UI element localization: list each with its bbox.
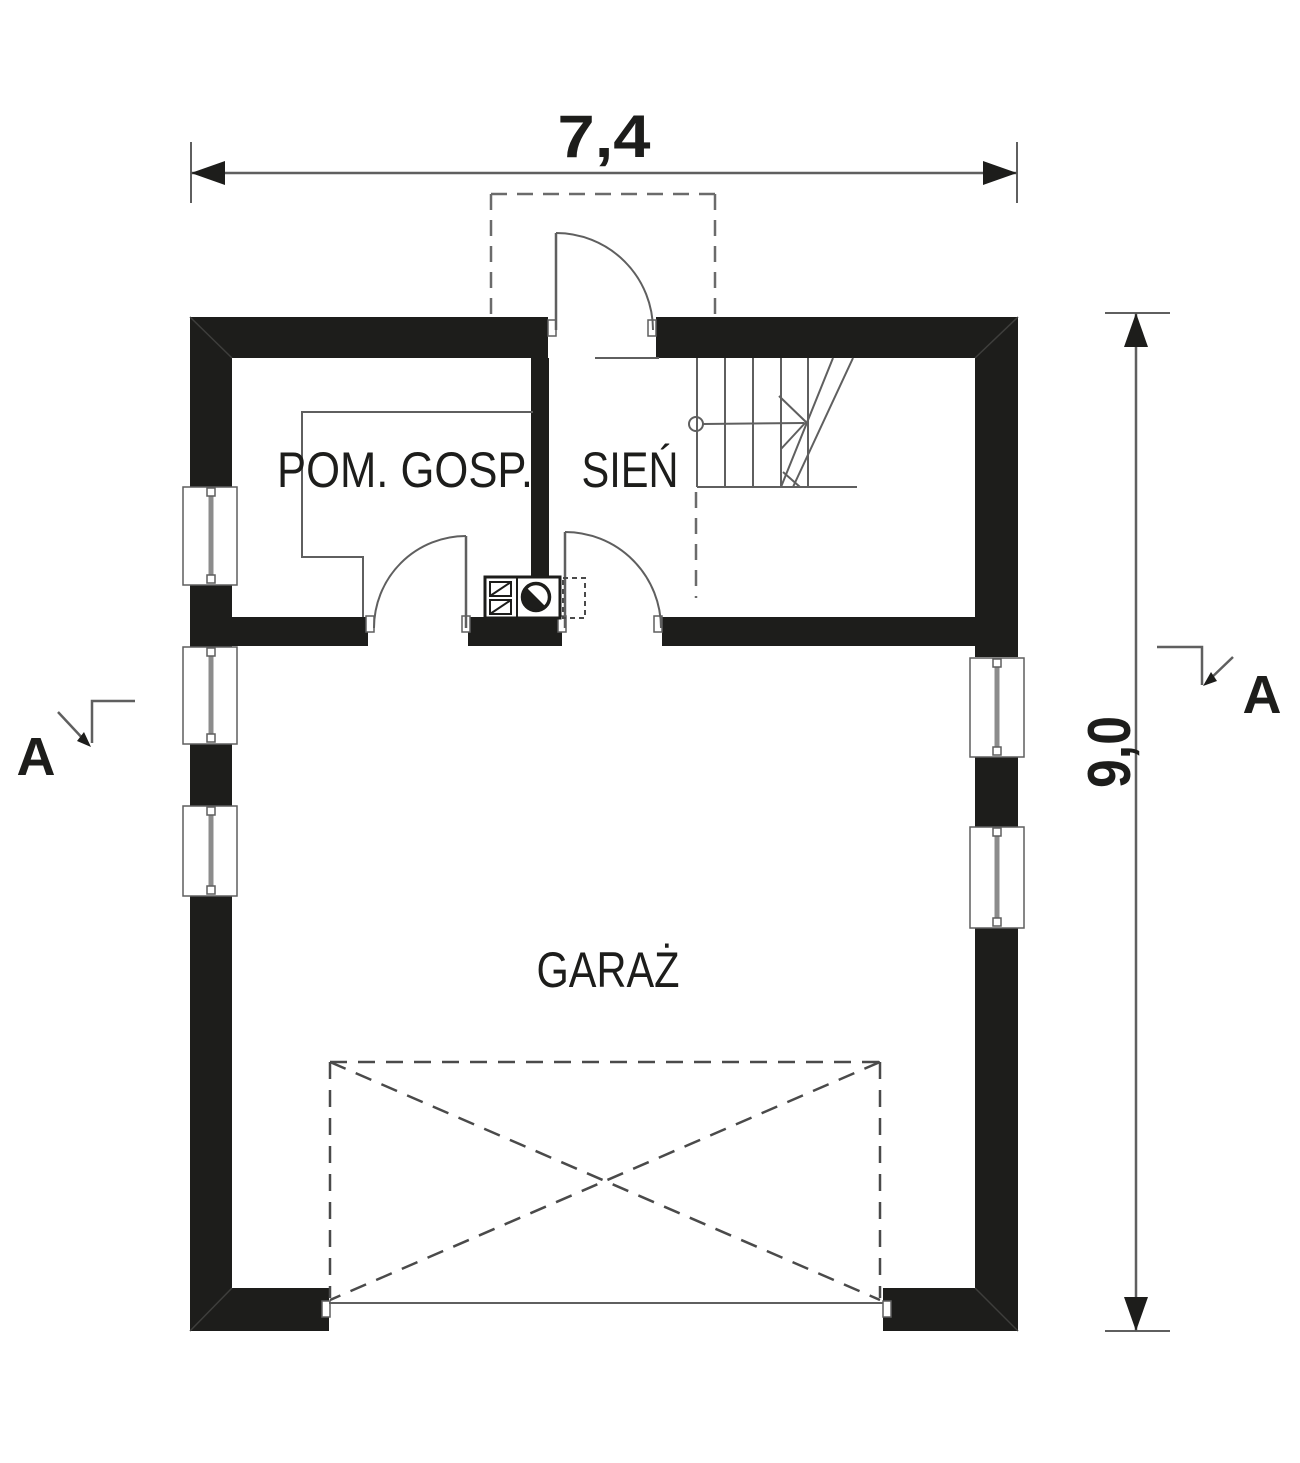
door-swing-arc bbox=[556, 233, 653, 330]
wall-left-b bbox=[190, 585, 232, 647]
room-label-garage: GARAŻ bbox=[537, 942, 680, 998]
window bbox=[183, 647, 237, 744]
wall-interior-vertical bbox=[531, 358, 549, 577]
door-utility bbox=[366, 536, 470, 632]
window bbox=[970, 827, 1024, 928]
wall-left-a bbox=[190, 317, 232, 487]
wall-top-right bbox=[656, 317, 1018, 358]
dimension-width-label: 7,4 bbox=[558, 103, 652, 170]
wall-right-a bbox=[975, 317, 1018, 657]
boiler-flue-dashed-box bbox=[563, 578, 585, 618]
wall-interior-h2 bbox=[468, 617, 562, 646]
dimension-arrow bbox=[1124, 313, 1148, 347]
door-jamb bbox=[366, 616, 374, 632]
floor-plan-drawing: 7,4 9,0 A A POM. GOSP. SIEŃ GARAŻ bbox=[0, 0, 1300, 1463]
dimension-width: 7,4 bbox=[191, 103, 1017, 203]
wall-interior-h3 bbox=[662, 617, 975, 646]
stair-walkline-arrow bbox=[779, 396, 806, 422]
stair-walkline bbox=[703, 423, 804, 424]
dimension-arrow bbox=[983, 161, 1017, 185]
section-label-right: A bbox=[1243, 665, 1282, 725]
window bbox=[183, 806, 237, 896]
door-entrance bbox=[548, 233, 659, 358]
door-jamb bbox=[883, 1301, 891, 1317]
dimension-height-label: 9,0 bbox=[1076, 716, 1143, 788]
windows-left bbox=[183, 487, 237, 896]
section-marker-right: A bbox=[1157, 647, 1282, 725]
staircase bbox=[689, 358, 857, 598]
wall-top-left bbox=[190, 317, 548, 358]
entrance-canopy-outline bbox=[491, 194, 715, 317]
room-label-utility: POM. GOSP. bbox=[277, 442, 533, 498]
wall-bottom-right-stub bbox=[883, 1288, 1018, 1331]
garage-door-opening bbox=[322, 1062, 891, 1317]
section-line bbox=[1157, 647, 1202, 685]
window bbox=[970, 658, 1024, 757]
boiler-symbol bbox=[485, 577, 585, 618]
dimension-arrow bbox=[191, 161, 225, 185]
floor-plan-canvas: 7,4 9,0 A A POM. GOSP. SIEŃ GARAŻ bbox=[0, 0, 1300, 1463]
window bbox=[183, 487, 237, 585]
interior-walls bbox=[232, 358, 975, 646]
dimension-height: 9,0 bbox=[1076, 313, 1170, 1331]
door-swing-arc bbox=[565, 532, 661, 628]
wall-right-c bbox=[975, 928, 1018, 1331]
wall-left-c bbox=[190, 744, 232, 806]
dimension-arrow bbox=[1124, 1297, 1148, 1331]
wall-left-d bbox=[190, 896, 232, 1331]
room-label-hall: SIEŃ bbox=[582, 442, 679, 498]
door-jamb bbox=[322, 1301, 330, 1317]
section-label-left: A bbox=[17, 727, 56, 787]
door-swing-arc bbox=[374, 536, 466, 628]
section-marker-left: A bbox=[17, 701, 136, 787]
wall-right-b bbox=[975, 757, 1018, 827]
wall-interior-h1 bbox=[232, 617, 368, 646]
section-line bbox=[92, 701, 135, 743]
